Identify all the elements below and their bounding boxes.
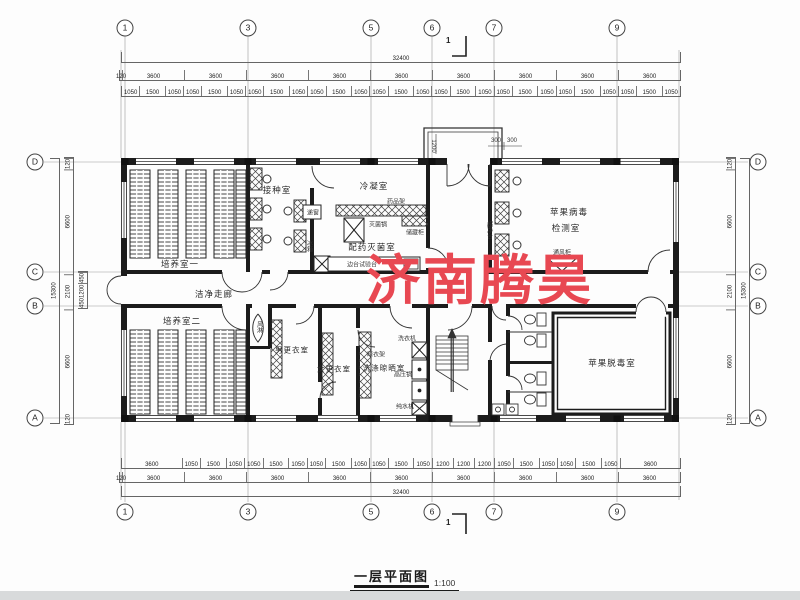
dim-label: 6600 bbox=[726, 309, 735, 414]
dim-label: 2100 bbox=[64, 274, 73, 308]
axis-bubble-bottom-6: 6 bbox=[424, 504, 441, 521]
drawing-title-block: 一层平面图 1:100 bbox=[350, 566, 459, 591]
top-bay-dimensions: 120360036003600360036003600360036003600 bbox=[119, 70, 681, 81]
dim-label: 1200 bbox=[454, 458, 475, 468]
room-label-virus-test-line2: 检测室 bbox=[552, 222, 581, 234]
dim-label: 6600 bbox=[726, 169, 735, 274]
porch-dim-1200: 1200 bbox=[430, 139, 436, 152]
dim-label: 1050 bbox=[414, 86, 432, 96]
dim-label: 1500 bbox=[327, 86, 353, 96]
axis-bubble-right-D: D bbox=[750, 154, 767, 171]
dim-label: 3600 bbox=[619, 70, 680, 80]
axis-bubble-right-C: C bbox=[750, 264, 767, 281]
dim-label: 1050 bbox=[557, 86, 575, 96]
room-label-detox: 苹果脱毒室 bbox=[588, 357, 636, 369]
dim-label: 1050 bbox=[619, 86, 637, 96]
dim-label: 3600 bbox=[123, 472, 185, 482]
dim-label: 3600 bbox=[123, 70, 185, 80]
dim-label: 1500 bbox=[637, 86, 663, 96]
dim-label: 120 bbox=[64, 414, 73, 424]
bottom-overall-dimension: 32400 bbox=[121, 486, 681, 497]
dim-label: 1050 bbox=[289, 458, 307, 468]
room-label-virus-test-line1: 苹果病毒 bbox=[550, 206, 588, 218]
dim-label: 1050 bbox=[228, 86, 246, 96]
axis-bubble-left-D: D bbox=[27, 154, 44, 171]
dim-label: 1050 bbox=[432, 86, 450, 96]
room-label-culture1: 培养室一 bbox=[161, 258, 199, 270]
dim-label: 1500 bbox=[264, 86, 290, 96]
culture-room1-racks bbox=[130, 170, 246, 258]
dim-label: 6600 bbox=[64, 309, 73, 414]
dim-label: 1500 bbox=[389, 458, 415, 468]
room-label-clean-corridor: 洁净走廊 bbox=[195, 288, 233, 300]
equip-label-drying-rack: 晾衣架 bbox=[367, 350, 385, 359]
dim-label: 1050 bbox=[308, 86, 326, 96]
dim-label: 1500 bbox=[264, 458, 290, 468]
top-fine-dimensions: 1050150010501050150010501050150010501050… bbox=[121, 86, 681, 97]
equip-label-water-purifier: 纯水机 bbox=[396, 402, 414, 411]
dim-label: 1050 bbox=[414, 458, 432, 468]
equip-label-sterilizer: 灭菌锅 bbox=[369, 220, 387, 229]
dim-label: 15300 bbox=[50, 159, 59, 423]
dim-label: 1050 bbox=[246, 86, 264, 96]
dim-label: 1200 bbox=[433, 458, 454, 468]
dim-label: 1050 bbox=[370, 86, 388, 96]
axis-bubble-top-7: 7 bbox=[486, 20, 503, 37]
dim-label: 3600 bbox=[247, 70, 309, 80]
exit-step bbox=[450, 415, 480, 426]
porch-dim-300b: 300 bbox=[507, 138, 517, 144]
equip-label-fridge: 冰箱 bbox=[305, 240, 314, 252]
axis-bubble-right-B: B bbox=[750, 298, 767, 315]
dim-label: 32400 bbox=[122, 486, 680, 496]
dim-label: 1500 bbox=[202, 86, 228, 96]
bottom-gray-bar bbox=[0, 591, 800, 600]
dim-label: 1050 bbox=[601, 86, 619, 96]
left-sub-dimensions: 4501200450 bbox=[78, 271, 88, 309]
room-label-condensation: 冷凝室 bbox=[360, 180, 389, 192]
dim-label: 1050 bbox=[663, 86, 680, 96]
dim-label: 1500 bbox=[389, 86, 415, 96]
dim-label: 1050 bbox=[558, 458, 576, 468]
right-overall-dimension: 15300 bbox=[740, 158, 750, 424]
dim-label: 1050 bbox=[370, 458, 388, 468]
dim-label: 1050 bbox=[183, 458, 201, 468]
floor-plan-page: 1 3 5 6 7 9 1 3 5 6 7 9 D C B A D C B A … bbox=[0, 0, 800, 600]
drawing-title: 一层平面图 bbox=[354, 566, 429, 588]
room-label-inoculation: 接种室 bbox=[263, 184, 292, 196]
axis-bubble-top-9: 9 bbox=[609, 20, 626, 37]
dim-label: 1050 bbox=[227, 458, 245, 468]
dim-label: 1050 bbox=[476, 86, 494, 96]
left-segment-dimensions: 120660021006600120 bbox=[64, 157, 74, 425]
equip-label-reagent-shelf: 药品架 bbox=[387, 197, 405, 206]
dim-label: 3600 bbox=[122, 458, 183, 468]
axis-bubble-left-B: B bbox=[27, 298, 44, 315]
dim-label: 6600 bbox=[64, 169, 73, 274]
axis-bubble-left-C: C bbox=[27, 264, 44, 281]
dim-label: 1050 bbox=[245, 458, 263, 468]
top-overall-dimension: 32400 bbox=[121, 52, 681, 63]
dim-label: 1200 bbox=[78, 283, 87, 298]
dim-label: 3600 bbox=[495, 472, 557, 482]
dim-label: 3600 bbox=[433, 70, 495, 80]
dim-label: 1500 bbox=[326, 458, 352, 468]
dim-label: 1200 bbox=[475, 458, 496, 468]
equip-label-autoclave: 高压锅 bbox=[394, 370, 412, 379]
dim-label: 3600 bbox=[495, 70, 557, 80]
dim-label: 120 bbox=[726, 158, 735, 169]
dim-label: 3600 bbox=[557, 472, 619, 482]
axis-bubble-left-A: A bbox=[27, 410, 44, 427]
dim-label: 1050 bbox=[352, 458, 370, 468]
axis-bubble-bottom-9: 9 bbox=[609, 504, 626, 521]
section-mark-top-label: 1 bbox=[446, 36, 450, 45]
staircase bbox=[436, 329, 468, 392]
drawing-scale: 1:100 bbox=[434, 578, 455, 588]
axis-bubble-bottom-1: 1 bbox=[117, 504, 134, 521]
room-label-men-changing: 男更衣室 bbox=[275, 345, 309, 356]
bottom-bay-dimensions: 120360036003600360036003600360036003600 bbox=[119, 472, 681, 483]
equip-label-clean-bench: 超净台 bbox=[485, 221, 494, 239]
section-mark-bottom-label: 1 bbox=[446, 518, 450, 527]
dim-label: 1050 bbox=[352, 86, 370, 96]
dim-label: 120 bbox=[726, 414, 735, 424]
dim-label: 1500 bbox=[201, 458, 227, 468]
culture-room2-racks bbox=[130, 330, 246, 414]
dim-label: 3600 bbox=[621, 458, 681, 468]
dim-label: 1050 bbox=[166, 86, 184, 96]
dim-label: 3600 bbox=[619, 472, 680, 482]
axis-bubble-right-A: A bbox=[750, 410, 767, 427]
dim-label: 3600 bbox=[557, 70, 619, 80]
dim-label: 1050 bbox=[538, 86, 556, 96]
dim-label: 1050 bbox=[184, 86, 202, 96]
dim-label: 32400 bbox=[122, 52, 680, 62]
dim-label: 3600 bbox=[185, 472, 247, 482]
dim-label: 1050 bbox=[122, 86, 140, 96]
dim-label: 15300 bbox=[740, 159, 749, 423]
equip-label-storage-cabinet: 储藏柜 bbox=[406, 228, 424, 237]
dim-label: 1500 bbox=[576, 458, 602, 468]
dim-label: 1500 bbox=[575, 86, 601, 96]
room-label-culture2: 培养室二 bbox=[163, 315, 201, 327]
dim-label: 1050 bbox=[540, 458, 558, 468]
right-segment-dimensions: 120660021006600120 bbox=[726, 157, 736, 425]
axis-bubble-top-3: 3 bbox=[240, 20, 257, 37]
axis-bubble-bottom-7: 7 bbox=[486, 504, 503, 521]
dim-label: 3600 bbox=[433, 472, 495, 482]
dim-label: 3600 bbox=[309, 472, 371, 482]
room-label-air-shower: 风淋 bbox=[255, 321, 264, 333]
dim-label: 1050 bbox=[495, 86, 513, 96]
dim-label: 120 bbox=[64, 158, 73, 169]
dim-label: 3600 bbox=[247, 472, 309, 482]
dim-label: 3600 bbox=[371, 472, 433, 482]
dim-label: 1500 bbox=[513, 86, 539, 96]
axis-bubble-top-1: 1 bbox=[117, 20, 134, 37]
axis-bubble-top-5: 5 bbox=[363, 20, 380, 37]
axis-bubble-bottom-5: 5 bbox=[363, 504, 380, 521]
dim-label: 450 bbox=[78, 298, 87, 308]
dim-label: 1050 bbox=[308, 458, 326, 468]
bottom-fine-dimensions: 3600105015001050105015001050105015001050… bbox=[121, 458, 681, 469]
porch-dim-300a: 300 bbox=[491, 138, 501, 144]
dim-label: 2100 bbox=[726, 274, 735, 308]
dim-label: 1050 bbox=[290, 86, 308, 96]
watermark-text: 济南腾昊 bbox=[366, 252, 594, 311]
room-label-women-changing: 女更衣室 bbox=[317, 364, 351, 375]
dim-label: 450 bbox=[78, 272, 87, 283]
dim-label: 1050 bbox=[602, 458, 620, 468]
dim-label: 3600 bbox=[309, 70, 371, 80]
equip-label-pass-window: 递窗 bbox=[307, 208, 319, 217]
axis-bubble-top-6: 6 bbox=[424, 20, 441, 37]
dim-label: 1500 bbox=[514, 458, 540, 468]
equip-label-washer: 洗衣机 bbox=[398, 334, 416, 343]
dim-label: 1500 bbox=[451, 86, 477, 96]
dim-label: 1500 bbox=[140, 86, 166, 96]
left-overall-dimension: 15300 bbox=[50, 158, 60, 424]
dim-label: 3600 bbox=[371, 70, 433, 80]
axis-bubble-bottom-3: 3 bbox=[240, 504, 257, 521]
dim-label: 3600 bbox=[185, 70, 247, 80]
dim-label: 1050 bbox=[495, 458, 513, 468]
